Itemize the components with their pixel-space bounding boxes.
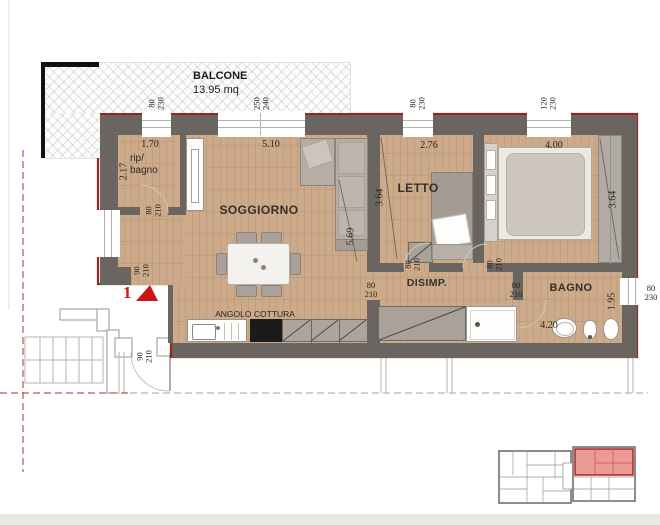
dim-camera-width: 4.00 (539, 140, 569, 151)
opening-label-win-bagno: 80230 (641, 284, 660, 301)
opening-label-door-camera: 80210 (486, 248, 503, 282)
room-label-soggiorno: SOGGIORNO (209, 203, 309, 217)
balcony-label: BALCONE (193, 70, 247, 82)
room-label-rip-line2: bagno (130, 165, 158, 176)
opening-label-win-rip: 80230 (148, 87, 165, 121)
dim-soggiorno-width: 5.10 (256, 139, 286, 150)
opening-label-balcony-door: 250240 (253, 87, 270, 121)
floor-plan-page: BALCONE 13.95 mq SOGGIORNO LETTO DISIMP.… (0, 0, 660, 525)
room-label-rip-line1: rip/ (130, 153, 144, 164)
opening-label-win-letto: 80230 (409, 87, 426, 121)
opening-label-door-letto: 80210 (404, 248, 421, 282)
key-plan-inset (497, 441, 637, 507)
page-bottom-band (0, 514, 660, 525)
opening-label-door-rip: 80210 (145, 194, 162, 228)
dim-bagno-depth: 1.95 (607, 287, 618, 317)
opening-label-door-soggiorno: 80210 (354, 281, 388, 298)
room-label-bagno: BAGNO (541, 282, 601, 294)
dim-soggiorno-depth: 5.69 (346, 222, 357, 252)
opening-label-win-camera: 120230 (540, 87, 557, 121)
unit-number-marker: 1 (123, 283, 132, 303)
dim-bagno-length: 4.20 (534, 320, 564, 331)
room-label-letto: LETTO (388, 181, 448, 195)
room-label-angolo-cottura: ANGOLO COTTURA (212, 309, 298, 319)
opening-label-door-notch: 90210 (133, 254, 150, 288)
dim-camera-depth: 3.64 (608, 185, 619, 215)
dim-rip-width: 1.70 (135, 139, 165, 150)
dim-rip-depth: 2.17 (119, 157, 130, 187)
balcony-area-label: 13.95 mq (193, 84, 239, 96)
opening-label-door-entry: 90210 (136, 340, 153, 374)
dim-letto-width: 2.76 (414, 140, 444, 151)
dim-letto-depth: 3.64 (375, 183, 386, 213)
opening-label-door-bagno: 80210 (499, 281, 533, 298)
key-plan-highlighted-unit (575, 449, 633, 475)
